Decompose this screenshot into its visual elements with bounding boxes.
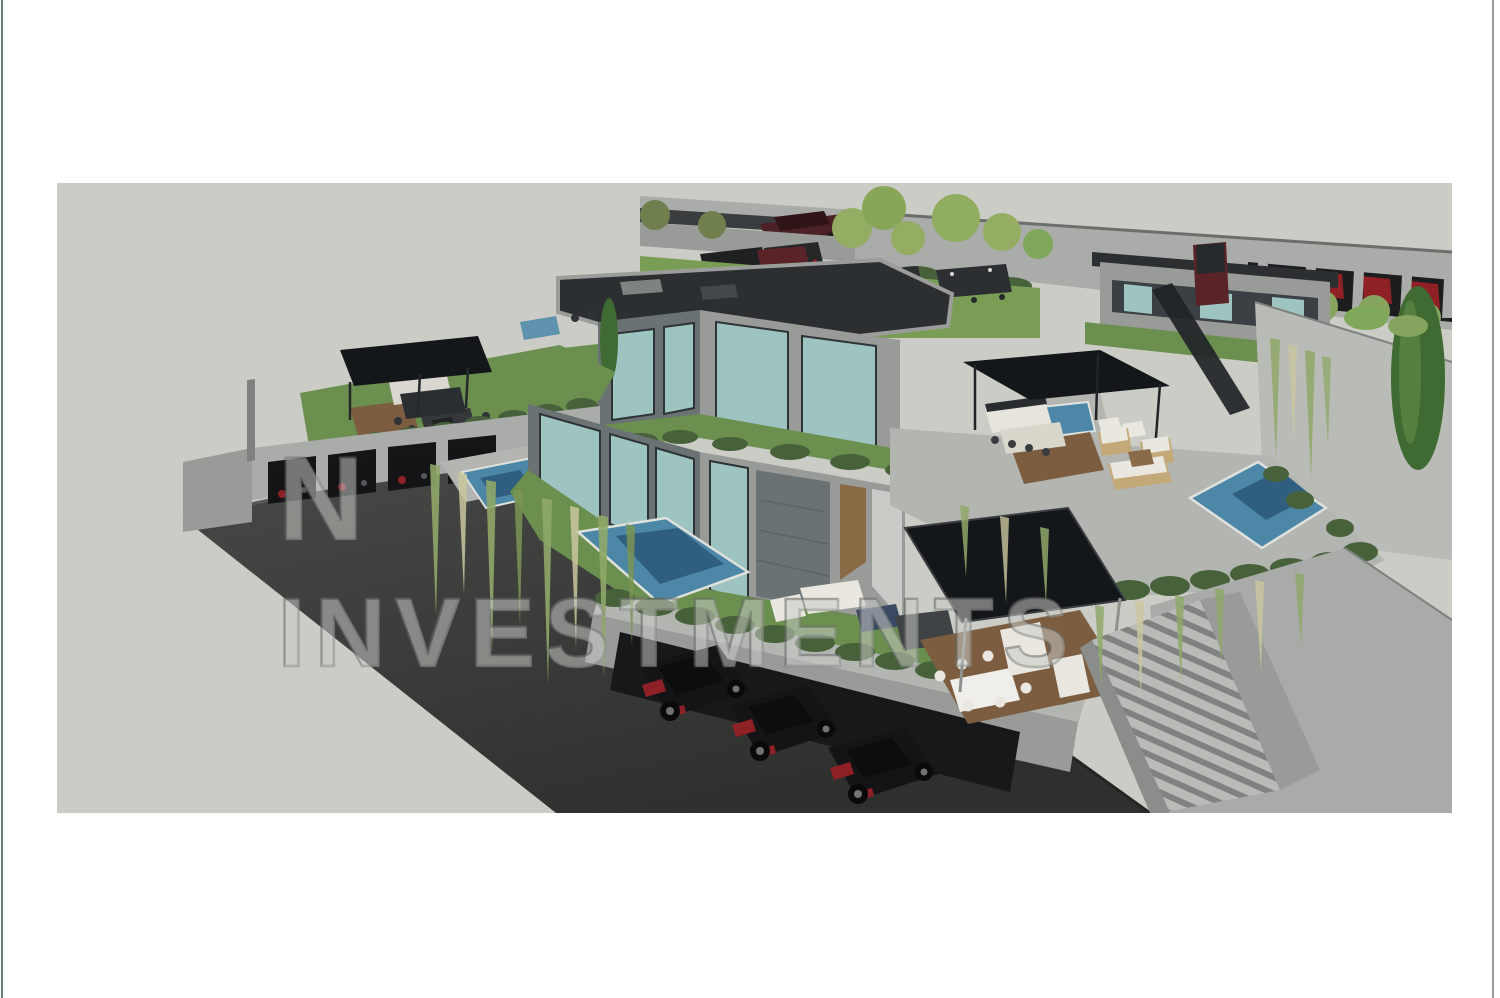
villa-render-image bbox=[57, 183, 1452, 813]
corner-column bbox=[247, 379, 255, 462]
left-edge-line bbox=[1, 0, 3, 998]
page: { "page": { "background": "#ffffff" }, "… bbox=[0, 0, 1500, 998]
right-edge-line bbox=[1492, 0, 1494, 998]
villa-render-svg bbox=[57, 183, 1452, 813]
